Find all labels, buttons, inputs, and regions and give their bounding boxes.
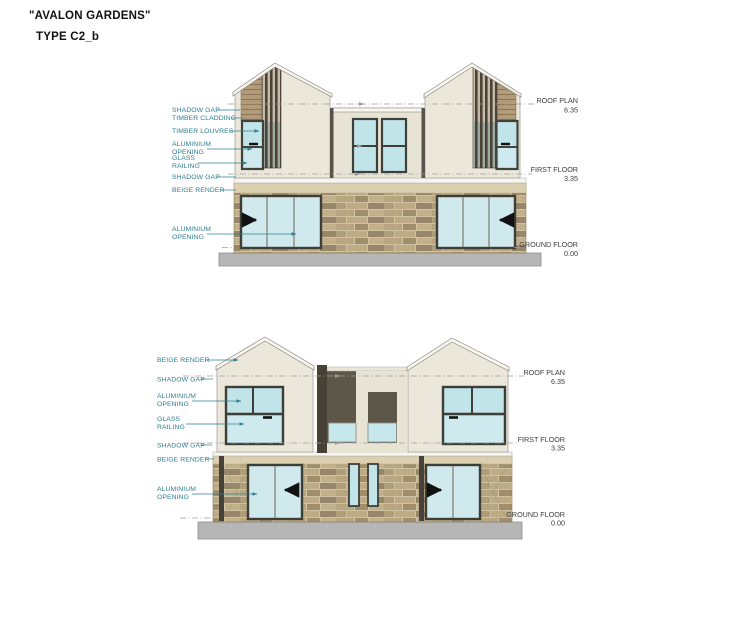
- rear-label-aluminium-opening-lower-2: OPENING: [157, 494, 189, 501]
- rear-label-aluminium-opening-upper-1: ALUMINIUM: [157, 393, 196, 400]
- front-label-timber-louvres: TIMBER LOUVRES: [172, 128, 234, 135]
- rear-left-door: [248, 465, 302, 519]
- rear-left-window: [226, 387, 283, 444]
- rear-middle-section: [317, 365, 407, 453]
- front-recess-left: [330, 108, 334, 178]
- front-left-window: [242, 121, 263, 169]
- front-timber-louvres-left: [262, 66, 281, 168]
- front-label-aluminium-opening-lower-1: ALUMINIUM: [172, 226, 211, 233]
- front-ground-floor-label: GROUND FLOOR: [519, 240, 578, 249]
- front-timber-louvres-right: [473, 67, 497, 169]
- rear-first-floor-value: 3.35: [551, 444, 565, 453]
- project-title: "AVALON GARDENS": [29, 10, 151, 22]
- rear-narrow-window-1: [349, 464, 359, 506]
- elevations-canvas: SHADOW GAP TIMBER CLADDING TIMBER LOUVRE…: [0, 0, 750, 626]
- front-label-beige-render: BEIGE RENDER: [172, 187, 225, 194]
- rear-ground-strip: [198, 522, 522, 539]
- rear-label-beige-render-bottom: BEIGE RENDER: [157, 457, 210, 464]
- rear-label-shadow-gap-bottom: SHADOW GAP: [157, 443, 205, 450]
- rear-stone-recess-right: [419, 456, 424, 521]
- rear-left-volume: [216, 337, 314, 452]
- front-recess-right: [422, 108, 426, 178]
- front-label-aluminium-opening-lower-2: OPENING: [172, 234, 204, 241]
- rear-balcony-glass-right: [368, 423, 397, 442]
- rear-label-glass-railing-1: GLASS: [157, 416, 181, 423]
- front-right-door: [437, 196, 515, 248]
- front-ground-strip: [219, 253, 541, 266]
- front-roof-plan-value: 6.35: [564, 106, 578, 115]
- front-label-timber-cladding: TIMBER CLADDING: [172, 115, 236, 122]
- front-label-aluminium-opening-upper-1: ALUMINIUM: [172, 141, 211, 148]
- front-left-door: [241, 196, 321, 248]
- rear-label-aluminium-opening-upper-2: OPENING: [157, 401, 189, 408]
- front-right-window: [497, 121, 518, 169]
- drawing-sheet: "AVALON GARDENS" TYPE C2_b: [0, 0, 750, 626]
- front-middle-section: [332, 108, 423, 178]
- rear-balcony-glass-left: [329, 423, 357, 442]
- rear-beige-render-band: [213, 456, 512, 464]
- rear-roof-plan-label: ROOF PLAN: [523, 368, 565, 377]
- front-label-glass-railing-1: GLASS: [172, 155, 196, 162]
- rear-label-shadow-gap-top: SHADOW GAP: [157, 377, 205, 384]
- front-first-floor-label: FIRST FLOOR: [531, 165, 578, 174]
- front-shadow-gap-band: [234, 178, 526, 183]
- front-right-volume: [424, 63, 521, 178]
- rear-right-volume: [407, 338, 509, 452]
- rear-elevation-drawing: BEIGE RENDER SHADOW GAP ALUMINIUM OPENIN…: [157, 337, 565, 539]
- front-label-glass-railing-2: RAILING: [172, 163, 200, 170]
- front-ground-floor-value: 0.00: [564, 249, 578, 258]
- rear-right-window: [443, 387, 505, 444]
- front-left-volume: [233, 63, 332, 178]
- rear-stone-recess-left: [219, 456, 224, 521]
- rear-label-beige-render-top: BEIGE RENDER: [157, 357, 210, 364]
- front-middle-window-1: [353, 119, 377, 172]
- rear-narrow-window-2: [368, 464, 378, 506]
- rear-roof-plan-value: 6.35: [551, 377, 565, 386]
- front-label-shadow-gap-bottom: SHADOW GAP: [172, 174, 220, 181]
- front-elevation-drawing: SHADOW GAP TIMBER CLADDING TIMBER LOUVRE…: [172, 63, 578, 266]
- front-label-shadow-gap-top: SHADOW GAP: [172, 107, 220, 114]
- front-middle-window-2: [382, 119, 406, 172]
- front-beige-render-band: [234, 183, 526, 193]
- rear-label-aluminium-opening-lower-1: ALUMINIUM: [157, 486, 196, 493]
- front-first-floor-value: 3.35: [564, 174, 578, 183]
- rear-label-glass-railing-2: RAILING: [157, 424, 185, 431]
- rear-ground-floor-value: 0.00: [551, 519, 565, 528]
- house-type-label: TYPE C2_b: [36, 31, 99, 43]
- front-roof-plan-label: ROOF PLAN: [536, 96, 578, 105]
- rear-right-door: [426, 465, 480, 519]
